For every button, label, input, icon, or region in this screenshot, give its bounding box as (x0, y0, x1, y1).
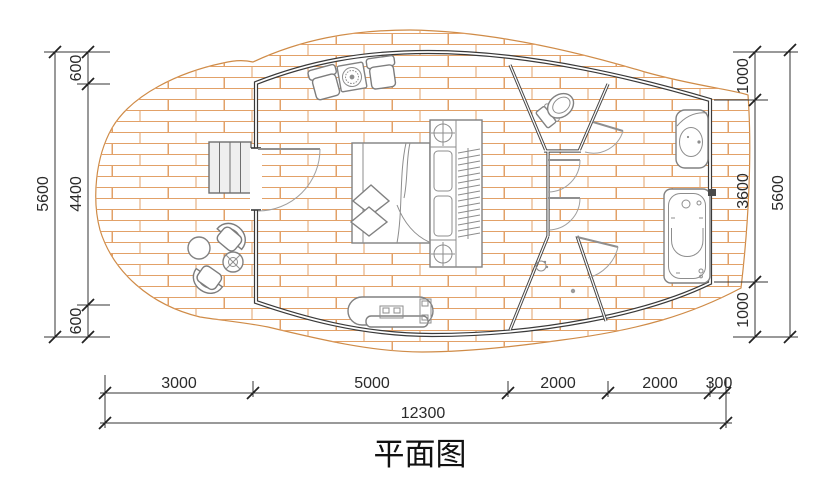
stairs-icon (209, 142, 251, 193)
wall-fixture (708, 189, 716, 196)
dim-bottom-4: 2000 (642, 375, 678, 392)
entry-opening (250, 148, 262, 210)
dim-bottom-5: 300 (706, 375, 733, 392)
dim-right-mid: 3600 (735, 173, 752, 209)
dim-right-bottom: 1000 (735, 292, 752, 328)
washbasin-icon (676, 110, 708, 168)
dim-bottom-2: 5000 (354, 375, 390, 392)
floor-plan-drawing: 600 4400 600 5600 1000 3600 1000 5600 (0, 0, 837, 496)
dimension-bottom: 3000 5000 2000 2000 300 12300 (99, 375, 732, 429)
outdoor-table-icon (188, 237, 210, 259)
bathtub-icon (664, 189, 710, 283)
floor-plan-canvas: 600 4400 600 5600 1000 3600 1000 5600 (0, 0, 837, 496)
potted-plant-icon (223, 252, 243, 272)
dim-bottom-total: 12300 (401, 405, 446, 422)
dim-bottom-1: 3000 (161, 375, 197, 392)
dim-left-mid: 4400 (68, 176, 85, 212)
headboard-unit (430, 120, 482, 267)
drawing-title: 平面图 (374, 437, 467, 473)
dim-right-outer: 5600 (770, 175, 787, 211)
bed-icon (351, 143, 430, 243)
floor-drain-icon (571, 289, 575, 293)
dim-right-top: 1000 (735, 58, 752, 94)
dim-left-top: 600 (68, 55, 85, 82)
kitchen-counter-icon (348, 297, 433, 327)
dim-left-outer: 5600 (35, 176, 52, 212)
dim-bottom-3: 2000 (540, 375, 576, 392)
dim-left-bottom: 600 (68, 308, 85, 335)
stove-table-icon (337, 62, 367, 92)
